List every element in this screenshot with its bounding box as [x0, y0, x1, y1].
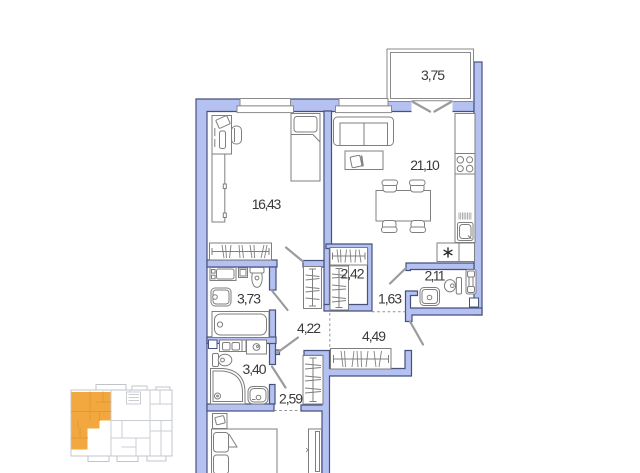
svg-text:3,73: 3,73	[237, 291, 261, 307]
svg-text:16,43: 16,43	[252, 196, 282, 212]
svg-text:4,49: 4,49	[362, 328, 386, 344]
svg-text:2,59: 2,59	[279, 391, 303, 407]
svg-text:2,11: 2,11	[425, 268, 446, 284]
svg-text:4,22: 4,22	[297, 320, 321, 336]
svg-text:3,75: 3,75	[421, 67, 445, 83]
svg-text:2,42: 2,42	[341, 266, 365, 282]
svg-text:21,10: 21,10	[410, 157, 440, 173]
svg-text:3,40: 3,40	[243, 361, 267, 377]
svg-text:1,63: 1,63	[378, 291, 402, 307]
